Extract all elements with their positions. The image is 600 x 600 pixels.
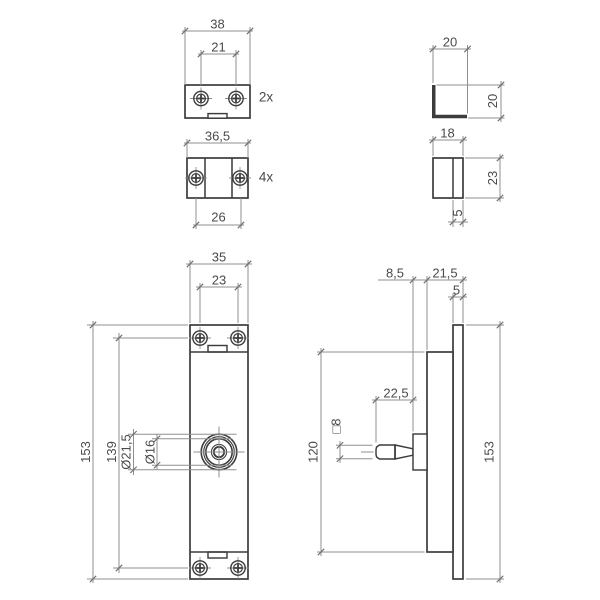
part-outline [453,325,463,579]
dim-label: 38 [210,17,224,32]
part-detail [413,434,427,470]
dim-label: 21,5 [432,266,457,281]
part-outline [433,158,463,198]
dim-label: 21 [211,40,225,55]
technical-drawing: 38212x36,5264x2020182353523153139Ø21,5Ø1… [0,0,600,600]
dim-label: Ø16 [143,440,158,465]
dim-label: 18 [440,126,454,141]
dim-label: 139 [104,441,119,463]
background [0,0,600,600]
dim-label: 2x [259,90,274,105]
dim-label: 20 [485,94,500,108]
part-profile [376,445,395,459]
dim-label: 35 [212,250,226,265]
dim-label: 120 [306,441,321,463]
dim-label: 8,5 [386,266,404,281]
dim-label: 23 [212,273,226,288]
dim-label: 4x [259,170,274,185]
dim-label: 5 [450,209,465,216]
dim-label: 5 [453,283,460,298]
drawing-canvas: 38212x36,5264x2020182353523153139Ø21,5Ø1… [0,0,600,600]
part-outline [427,352,453,552]
dim-label: 22,5 [383,386,408,401]
dim-label: 153 [78,441,93,463]
dim-label: 23 [485,171,500,185]
dim-label: 26 [211,210,225,225]
part-detail [208,552,227,558]
dim-label: 153 [482,441,497,463]
dim-label: 20 [443,35,457,50]
dim-label: □8 [329,418,344,433]
part-detail [208,114,227,119]
part-detail [208,346,227,353]
dim-label: Ø21,5 [119,434,134,469]
dim-label: 36,5 [205,129,230,144]
